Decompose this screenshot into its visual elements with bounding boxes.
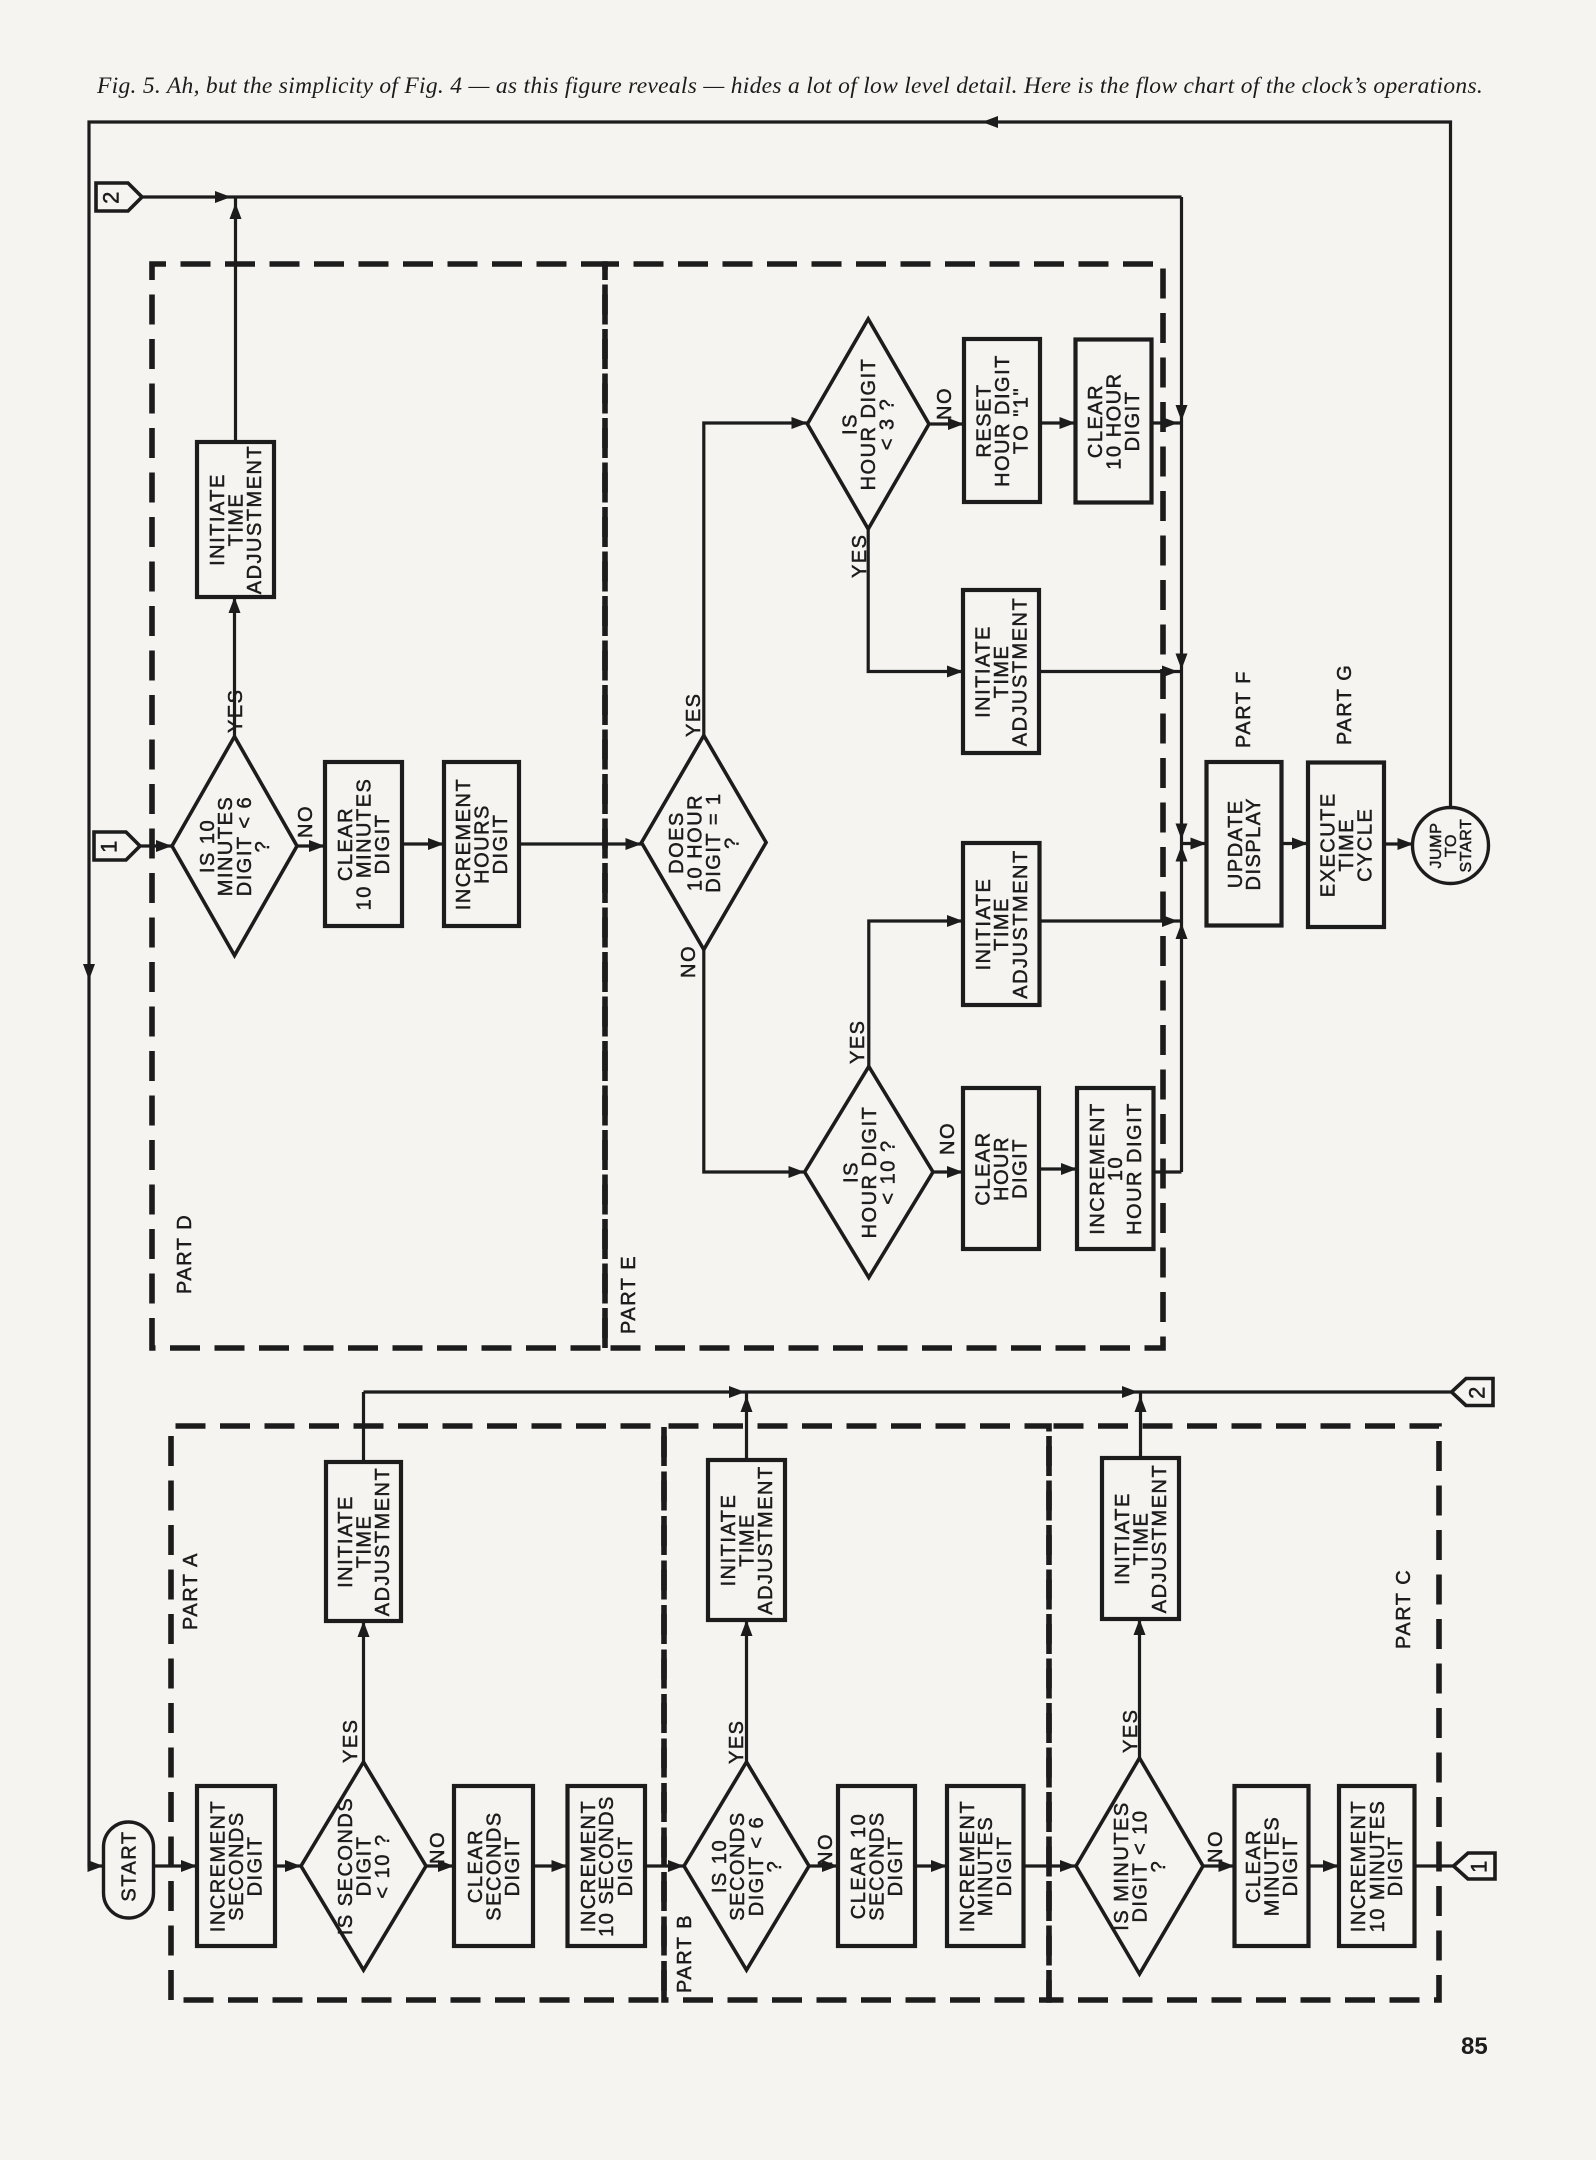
svg-text:?: ?: [252, 840, 274, 853]
svg-text:DIGIT: DIGIT: [1122, 391, 1144, 452]
svg-text:< 10 ?: < 10 ?: [372, 1833, 394, 1898]
svg-text:DISPLAY: DISPLAY: [1243, 797, 1265, 891]
svg-text:PART B: PART B: [674, 1914, 696, 1993]
svg-text:1: 1: [97, 839, 122, 853]
svg-text:?: ?: [764, 1860, 786, 1873]
svg-text:START: START: [119, 1830, 141, 1901]
svg-text:DIGIT: DIGIT: [1010, 1138, 1032, 1199]
svg-text:ADJUSTMENT: ADJUSTMENT: [1149, 1464, 1171, 1613]
svg-text:YES: YES: [726, 1719, 748, 1764]
svg-text:?: ?: [722, 836, 744, 849]
svg-text:NO: NO: [295, 805, 317, 838]
svg-text:PART A: PART A: [180, 1552, 202, 1630]
svg-text:YES: YES: [683, 692, 705, 737]
svg-text:PART D: PART D: [174, 1214, 196, 1294]
svg-text:DIGIT: DIGIT: [502, 1836, 524, 1897]
svg-text:NO: NO: [1205, 1830, 1227, 1863]
svg-text:ADJUSTMENT: ADJUSTMENT: [755, 1465, 777, 1614]
svg-text:PART E: PART E: [618, 1255, 640, 1334]
svg-text:TO "1": TO "1": [1011, 387, 1033, 454]
svg-text:NO: NO: [934, 387, 956, 420]
svg-text:START: START: [1458, 819, 1475, 873]
svg-text:DIGIT: DIGIT: [1280, 1836, 1302, 1897]
svg-text:CYCLE: CYCLE: [1355, 808, 1377, 882]
svg-text:ADJUSTMENT: ADJUSTMENT: [1010, 597, 1032, 746]
svg-text:DIGIT: DIGIT: [1385, 1836, 1407, 1897]
svg-text:PART F: PART F: [1233, 670, 1255, 748]
svg-text:DIGIT: DIGIT: [885, 1836, 907, 1897]
svg-text:< 3 ?: < 3 ?: [877, 398, 899, 451]
svg-text:DIGIT: DIGIT: [245, 1836, 267, 1897]
svg-text:PART G: PART G: [1334, 664, 1356, 745]
svg-text:ADJUSTMENT: ADJUSTMENT: [1010, 849, 1032, 998]
svg-text:YES: YES: [847, 1019, 869, 1064]
svg-text:NO: NO: [937, 1122, 959, 1155]
svg-text:PART C: PART C: [1393, 1569, 1415, 1649]
svg-text:1: 1: [1467, 1859, 1492, 1873]
svg-text:ADJUSTMENT: ADJUSTMENT: [244, 445, 266, 594]
svg-text:DIGIT: DIGIT: [994, 1836, 1016, 1897]
svg-text:2: 2: [1465, 1385, 1490, 1399]
svg-text:< 10 ?: < 10 ?: [877, 1139, 899, 1204]
svg-text:NO: NO: [678, 945, 700, 978]
svg-text:NO: NO: [427, 1831, 449, 1864]
svg-text:2: 2: [99, 190, 124, 204]
svg-text:HOUR DIGIT: HOUR DIGIT: [1124, 1102, 1146, 1235]
svg-text:ADJUSTMENT: ADJUSTMENT: [372, 1467, 394, 1616]
svg-text:NO: NO: [815, 1833, 837, 1866]
svg-text:?: ?: [1148, 1860, 1170, 1873]
svg-text:YES: YES: [340, 1718, 362, 1763]
svg-text:DIGIT: DIGIT: [615, 1836, 637, 1897]
svg-text:DIGIT: DIGIT: [490, 814, 512, 875]
svg-text:DIGIT: DIGIT: [372, 814, 394, 875]
